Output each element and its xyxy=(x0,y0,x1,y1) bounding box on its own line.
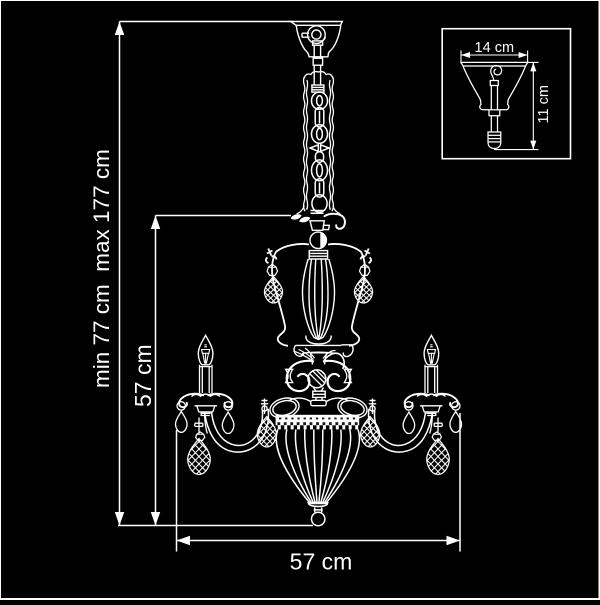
svg-text:57 cm: 57 cm xyxy=(290,549,353,575)
svg-text:57 cm: 57 cm xyxy=(130,344,156,407)
svg-text:14 cm: 14 cm xyxy=(475,40,515,56)
svg-text:min 77 cm max 177 cm: min 77 cm max 177 cm xyxy=(89,149,114,388)
svg-text:11 cm: 11 cm xyxy=(536,85,552,123)
